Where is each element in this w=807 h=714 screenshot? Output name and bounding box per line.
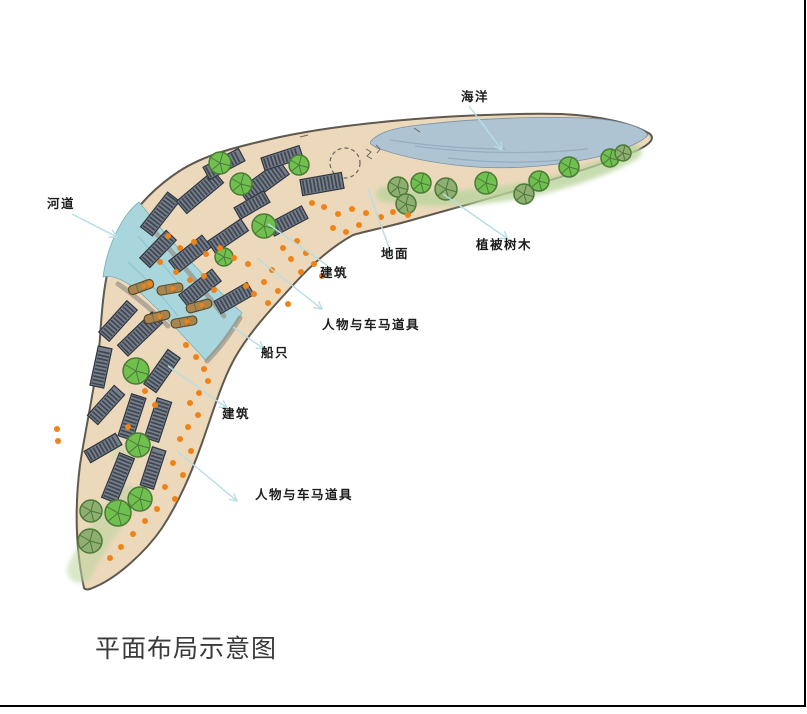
figure-dot	[261, 279, 267, 285]
figure-dot	[177, 245, 183, 251]
figure-dot	[170, 460, 176, 466]
plan-drawing	[0, 0, 807, 714]
figure-dot	[180, 472, 186, 478]
figure-dot	[172, 496, 178, 502]
figure-dot	[335, 211, 341, 217]
figure-dot	[201, 366, 207, 372]
figure-dot	[195, 412, 201, 418]
figure-dot	[363, 210, 369, 216]
figure-dot	[203, 251, 209, 257]
figure-dot	[330, 225, 336, 231]
label-ocean: 海洋	[461, 90, 489, 104]
tree-icon	[559, 157, 579, 177]
figure-dot	[165, 233, 171, 239]
diagram-title: 平面布局示意图	[95, 629, 277, 665]
tree-icon	[252, 214, 276, 238]
figure-dot	[154, 506, 160, 512]
figure-dot	[205, 378, 211, 384]
figure-dot	[405, 212, 411, 218]
figure-dot	[390, 209, 396, 215]
label-river: 河道	[47, 197, 75, 211]
figure-dot	[187, 277, 193, 283]
tree-icon	[78, 529, 102, 553]
figure-dot	[275, 288, 281, 294]
label-ground: 地面	[381, 247, 409, 261]
figure-dot	[162, 484, 168, 490]
figure-dot	[349, 206, 355, 212]
tree-icon	[126, 433, 150, 457]
document-page: 海洋 河道 建筑 地面 植被树木 人物与车马道具 船只 建筑 人物与车马道具 平…	[0, 0, 807, 714]
tree-icon	[411, 173, 431, 193]
tree-icon	[289, 155, 309, 175]
figure-dot	[147, 281, 153, 287]
tree-icon	[80, 500, 102, 522]
figure-dot	[285, 301, 291, 307]
figure-dot	[309, 200, 315, 206]
figure-dot	[118, 544, 124, 550]
figure-dot	[187, 400, 193, 406]
tree-icon	[209, 152, 231, 174]
page-border-right	[804, 0, 806, 707]
figure-dot	[173, 269, 179, 275]
figure-dot	[130, 531, 136, 537]
figure-dot	[188, 448, 194, 454]
label-figures-lower: 人物与车马道具	[255, 488, 353, 502]
label-building-lower: 建筑	[222, 407, 250, 421]
tree-icon	[105, 500, 131, 526]
figure-dot	[265, 300, 271, 306]
figure-dot	[288, 256, 294, 262]
figure-dot	[311, 261, 317, 267]
figure-dot	[142, 388, 148, 394]
tree-icon	[615, 145, 631, 161]
landmass-layer	[77, 114, 652, 590]
figure-dot	[152, 402, 158, 408]
figure-dot	[321, 204, 327, 210]
label-vegetation: 植被树木	[476, 238, 532, 252]
figure-dot	[55, 438, 61, 444]
tree-icon	[215, 248, 233, 266]
figure-dot	[142, 518, 148, 524]
label-boats: 船只	[261, 346, 289, 360]
page-border-bottom	[0, 705, 806, 707]
tree-icon	[230, 173, 252, 195]
tree-icon	[128, 487, 152, 511]
label-figures-upper: 人物与车马道具	[322, 318, 420, 332]
figure-dot	[177, 436, 183, 442]
tree-icon	[123, 358, 149, 384]
tree-icon	[396, 194, 416, 214]
label-building-upper: 建筑	[320, 266, 348, 280]
figure-dot	[196, 390, 202, 396]
figure-dot	[211, 287, 217, 293]
leader-line	[72, 214, 117, 237]
figure-dot	[157, 259, 163, 265]
figure-dot	[251, 291, 257, 297]
figure-dot	[183, 342, 189, 348]
figure-dot	[125, 424, 131, 430]
figure-dot	[191, 239, 197, 245]
figure-dot	[245, 261, 251, 267]
figure-dot	[243, 283, 249, 289]
figure-dot	[231, 255, 237, 261]
tree-icon	[529, 171, 549, 191]
figure-dot	[280, 245, 286, 251]
figure-dot	[343, 229, 349, 235]
figure-dot	[185, 424, 191, 430]
figure-dot	[54, 426, 60, 432]
figure-dot	[201, 273, 207, 279]
figure-dot	[193, 354, 199, 360]
tree-icon	[475, 172, 497, 194]
figure-dot	[107, 555, 113, 561]
figure-dot	[356, 222, 362, 228]
figure-dot	[217, 245, 223, 251]
figure-dot	[298, 269, 304, 275]
